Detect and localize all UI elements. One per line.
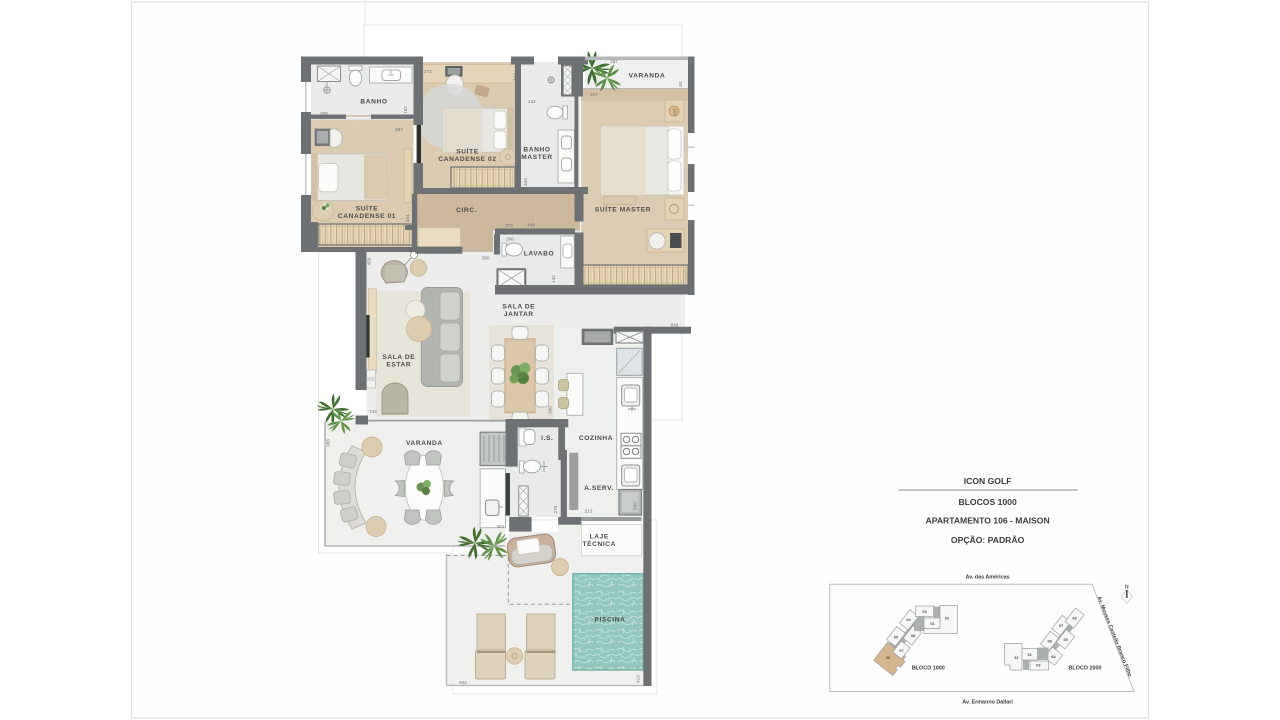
svg-text:JANTAR: JANTAR: [504, 311, 534, 318]
svg-text:APARTAMENTO 106 - MAISON: APARTAMENTO 106 - MAISON: [926, 515, 1050, 525]
svg-text:06: 06: [886, 656, 890, 660]
svg-text:MASTER: MASTER: [521, 154, 552, 161]
svg-text:502: 502: [459, 680, 467, 685]
svg-text:BANHO: BANHO: [360, 99, 387, 106]
svg-text:273: 273: [553, 505, 558, 513]
svg-text:Av. das Américas: Av. das Américas: [966, 575, 1010, 581]
svg-text:Av. Ermanno Dallari: Av. Ermanno Dallari: [962, 700, 1013, 706]
svg-text:267: 267: [590, 92, 598, 97]
svg-text:SALA DE: SALA DE: [502, 304, 535, 311]
svg-text:429: 429: [527, 223, 535, 228]
svg-text:TÉCNICA: TÉCNICA: [583, 539, 617, 548]
svg-text:500: 500: [633, 502, 638, 510]
svg-text:481: 481: [497, 524, 505, 529]
svg-text:272: 272: [424, 69, 432, 74]
svg-text:130: 130: [548, 422, 556, 427]
svg-text:SALA DE: SALA DE: [382, 354, 415, 361]
svg-text:01: 01: [930, 622, 934, 626]
svg-text:05: 05: [1063, 638, 1067, 642]
svg-text:SUÍTE: SUÍTE: [356, 204, 378, 213]
svg-text:BLOCO 1000: BLOCO 1000: [912, 666, 945, 672]
svg-text:92: 92: [678, 81, 683, 87]
svg-text:CANADENSE 02: CANADENSE 02: [438, 156, 496, 163]
svg-text:03: 03: [1036, 664, 1040, 668]
svg-text:459: 459: [367, 257, 372, 265]
svg-text:SUÍTE MASTER: SUÍTE MASTER: [595, 205, 651, 214]
svg-text:VARANDA: VARANDA: [629, 73, 666, 80]
svg-text:LAJE: LAJE: [590, 534, 609, 541]
svg-text:CIRC.: CIRC.: [456, 207, 477, 214]
svg-text:213: 213: [585, 509, 593, 514]
svg-text:07: 07: [1059, 624, 1063, 628]
svg-text:I.S.: I.S.: [541, 435, 553, 442]
svg-text:VARANDA: VARANDA: [406, 440, 443, 447]
svg-text:344: 344: [513, 73, 518, 81]
svg-text:03: 03: [922, 610, 926, 614]
svg-text:08: 08: [911, 634, 915, 638]
svg-text:BLOCOS 1000: BLOCOS 1000: [958, 497, 1016, 507]
svg-text:208: 208: [506, 237, 514, 242]
svg-text:BANHO: BANHO: [523, 147, 550, 154]
svg-text:334: 334: [405, 214, 410, 222]
svg-text:CANADENSE 01: CANADENSE 01: [338, 213, 396, 220]
svg-text:BLOCO 2000: BLOCO 2000: [1069, 666, 1102, 672]
svg-text:ICON GOLF: ICON GOLF: [964, 476, 1012, 486]
svg-text:287: 287: [610, 59, 618, 64]
svg-text:283: 283: [395, 127, 403, 132]
svg-text:289: 289: [320, 111, 328, 116]
svg-text:05: 05: [894, 636, 898, 640]
svg-text:360: 360: [548, 406, 553, 414]
svg-text:388: 388: [326, 439, 331, 447]
svg-text:SUÍTE: SUÍTE: [456, 146, 478, 155]
svg-text:OPÇÃO: PADRÃO: OPÇÃO: PADRÃO: [951, 535, 1025, 545]
svg-text:A.SERV.: A.SERV.: [584, 485, 614, 492]
svg-text:350: 350: [482, 256, 490, 261]
svg-text:COZINHA: COZINHA: [579, 435, 613, 442]
svg-text:497: 497: [673, 108, 678, 116]
svg-text:PISCINA: PISCINA: [595, 617, 626, 624]
svg-text:272: 272: [505, 223, 513, 228]
svg-text:142: 142: [528, 99, 536, 104]
svg-text:07: 07: [899, 649, 903, 653]
svg-text:02: 02: [945, 616, 949, 620]
svg-text:62: 62: [1014, 656, 1018, 660]
svg-text:162: 162: [403, 106, 408, 114]
svg-text:01: 01: [1027, 653, 1031, 657]
svg-text:08: 08: [1047, 640, 1051, 644]
svg-text:ESTAR: ESTAR: [386, 361, 411, 368]
svg-text:142: 142: [551, 275, 556, 283]
svg-text:LAVABO: LAVABO: [524, 251, 554, 258]
svg-text:413: 413: [636, 675, 641, 683]
svg-text:66: 66: [1072, 617, 1076, 621]
svg-text:849: 849: [671, 323, 679, 328]
svg-text:344: 344: [523, 178, 528, 186]
svg-text:744: 744: [369, 409, 377, 414]
